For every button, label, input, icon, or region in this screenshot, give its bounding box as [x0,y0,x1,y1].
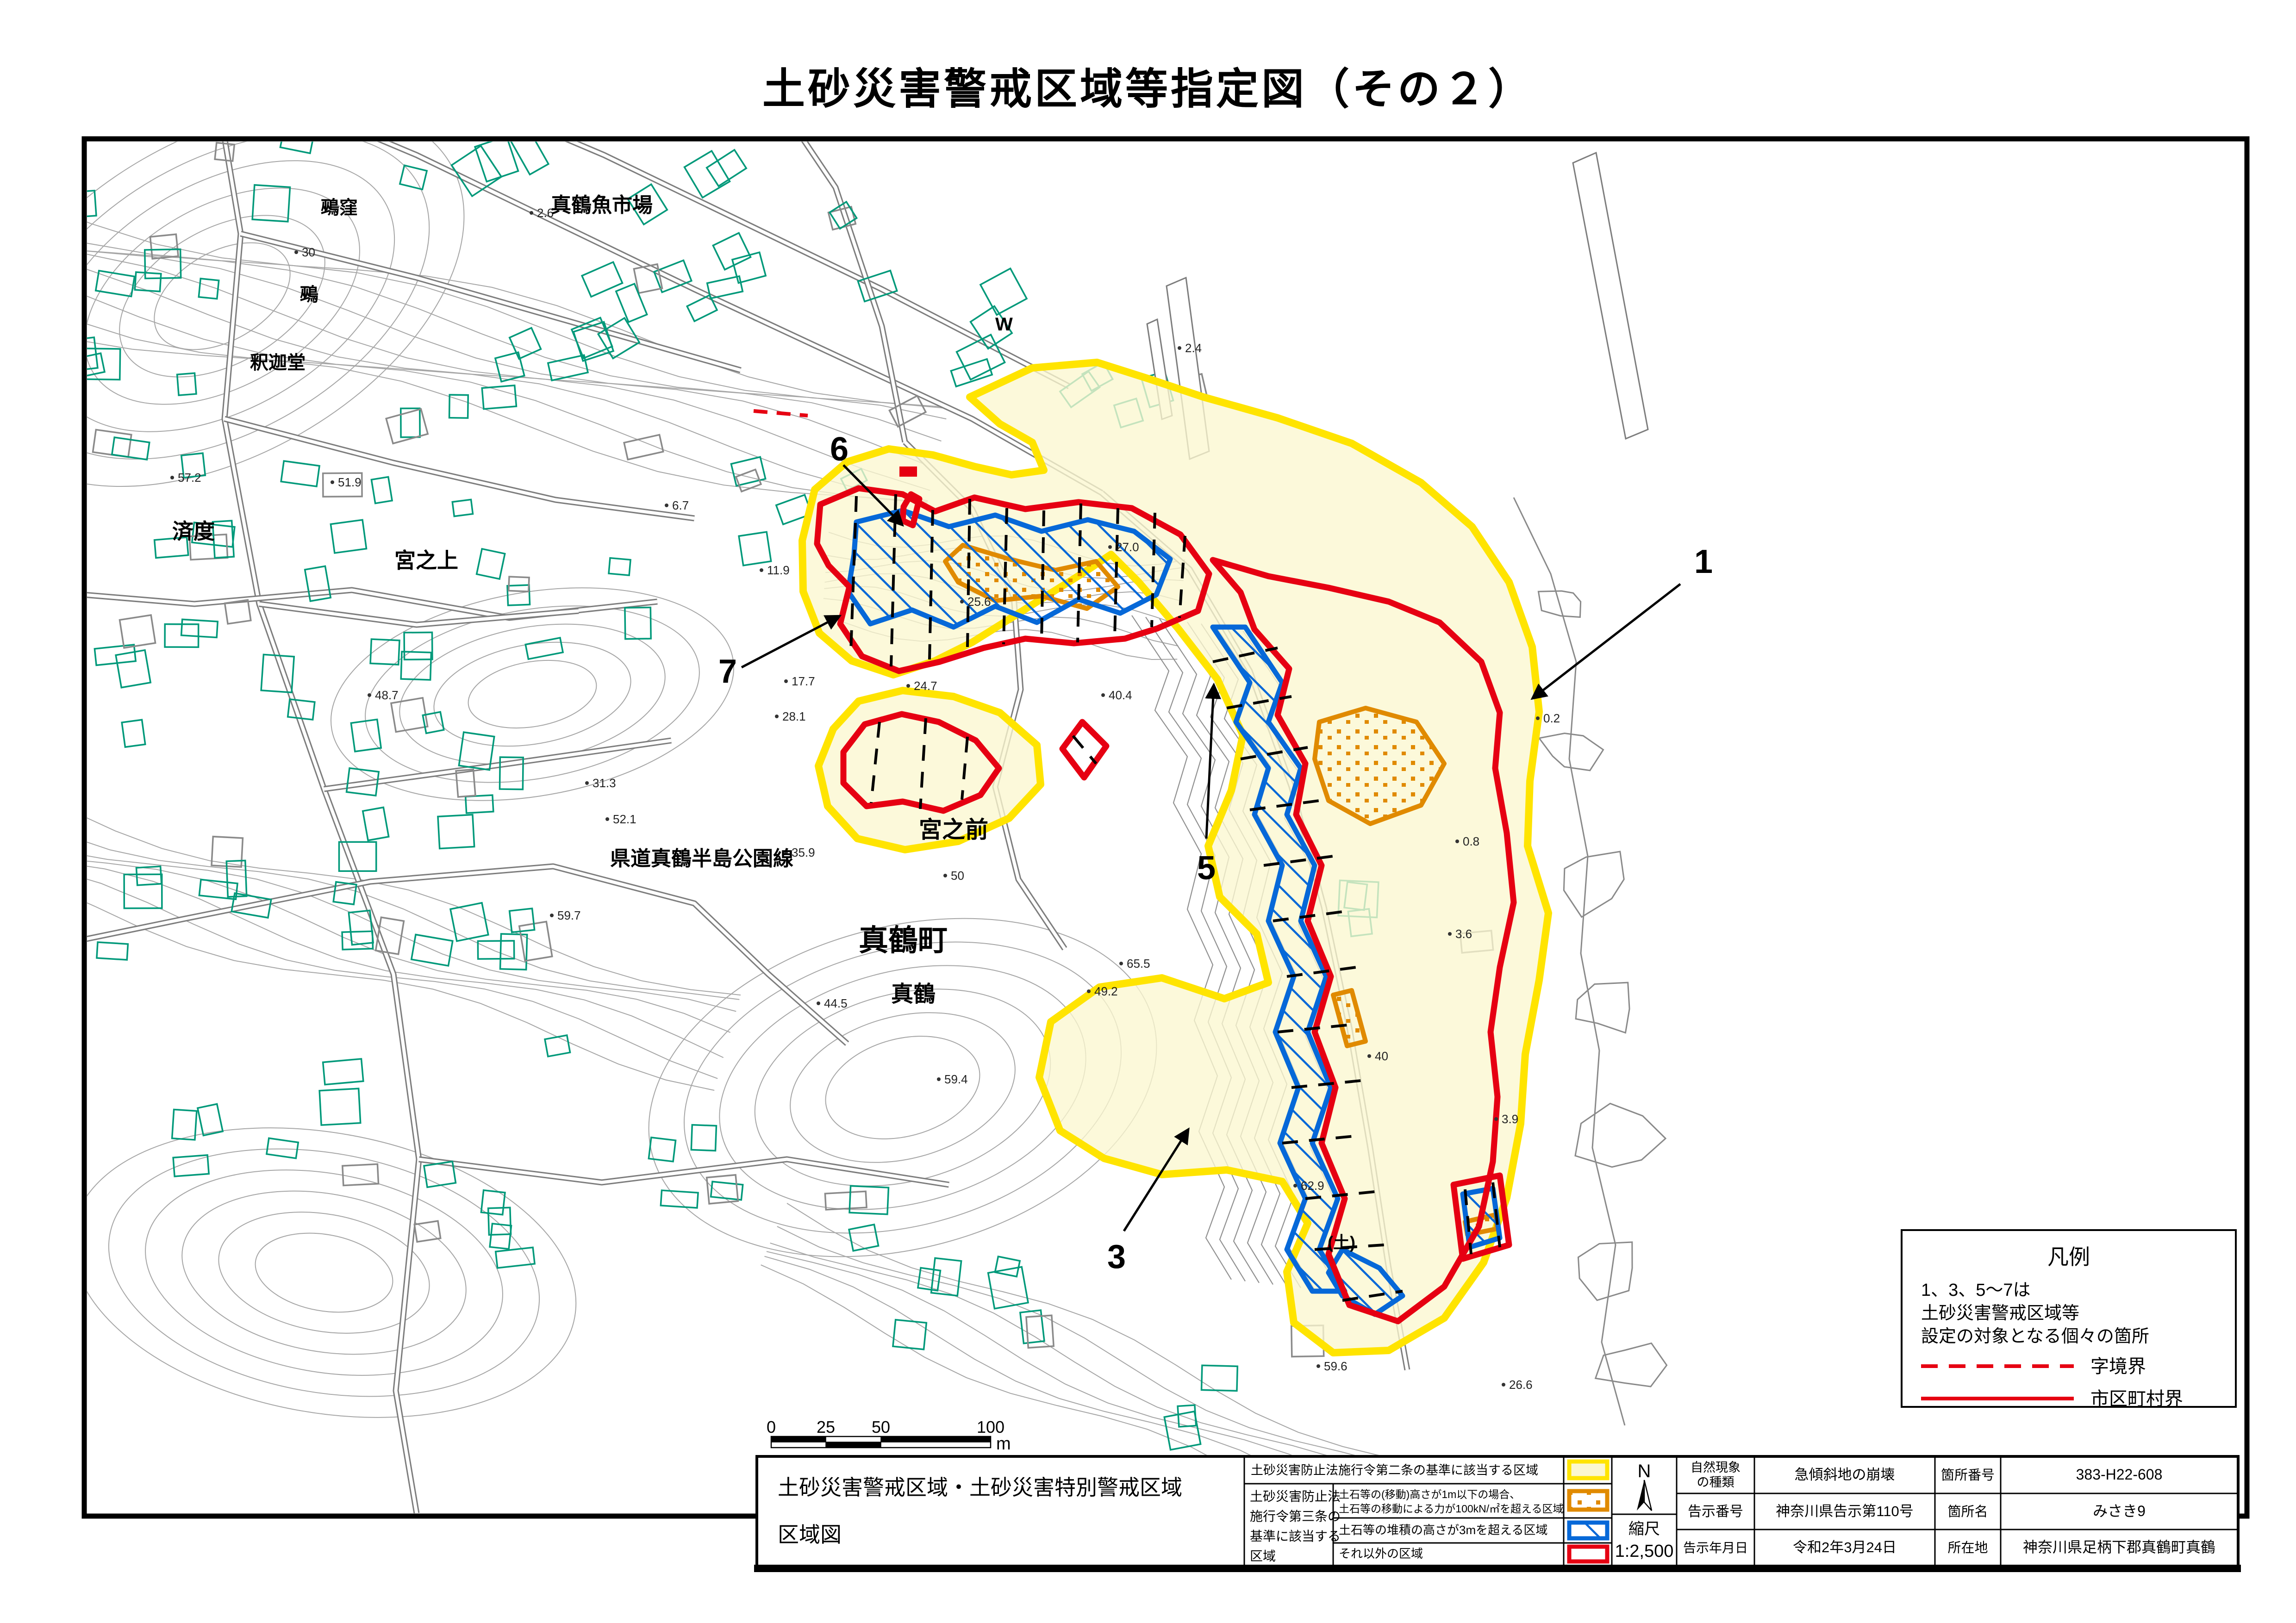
swatch-red-other-area [1569,1547,1607,1561]
callout-number-6: 6 [830,431,849,468]
spot-elevation: 3.6 [1455,927,1472,941]
table-article3-row1-line2: 土石等の移動による力が100kN/㎡を超える区域 [1339,1503,1564,1515]
info-label-notice-date: 告示年月日 [1683,1541,1748,1555]
spot-elevation: 44.5 [824,996,848,1010]
aza-boundary-red-dashed [754,411,808,416]
scale-tick-25: 25 [817,1418,835,1436]
legend-note-line1: 1、3、5～7は [1921,1281,2031,1300]
map-label: 宮之前 [919,817,988,843]
info-value-notice-date: 令和2年3月24日 [1793,1539,1897,1555]
map-label: (土) [1328,1233,1355,1252]
spot-elevation: 52.1 [613,812,636,826]
compass-n-label: N [1638,1461,1651,1481]
spot-elevation: 11.9 [767,563,790,577]
scale-tick-0: 0 [767,1418,776,1436]
small-red-marker [899,466,917,477]
table-article3-row2: 土石等の堆積の高さが3mを超える区域 [1339,1523,1547,1537]
spot-elevation: 49.2 [1094,984,1118,998]
spot-elevation: 35.9 [792,846,815,859]
callout-number-7: 7 [718,653,737,690]
spot-elevation: 51.9 [338,475,362,489]
scale-tick-100: 100 [977,1418,1004,1436]
callout-number-5: 5 [1197,850,1216,887]
spot-elevation: 65.5 [1127,957,1150,970]
swatch-blue-deposit-area [1569,1523,1607,1538]
map-label: 真鶴 [891,982,936,1007]
spot-elevation: 40.4 [1109,688,1132,702]
info-value-phenomenon: 急傾斜地の崩壊 [1795,1467,1895,1483]
info-table: 土砂災害警戒区域・土砂災害特別警戒区域 区域図 土砂災害防止法施行令第二条の基準… [754,1456,2241,1572]
map-label: W [995,314,1013,335]
spot-elevation: 30 [302,245,315,259]
map-label: 真鶴魚市場 [551,194,653,217]
swatch-orange-movement-area [1569,1491,1607,1510]
swatch-yellow-warning-area [1569,1461,1607,1478]
spot-elevation: 17.7 [792,674,815,688]
spot-elevation: 26.6 [1509,1378,1533,1392]
table-article3-row3: それ以外の区域 [1339,1547,1423,1561]
table-map-title-line1: 土砂災害警戒区域・土砂災害特別警戒区域 [778,1475,1182,1499]
hazard-map: 2.6302.46.757.251.948.731.311.917.724.72… [0,0,2296,1623]
table-article3-header-line1: 土砂災害防止法 [1250,1489,1341,1504]
page: 土砂災害警戒区域等指定図（その２） [0,0,2296,1623]
spot-elevation: 48.7 [375,688,399,702]
map-label: 真鶴町 [859,924,948,957]
info-value-location: 神奈川県足柄下郡真鶴町真鶴 [2023,1539,2215,1555]
info-label-phenomenon-l1: 自然現象 [1691,1461,1741,1474]
callout-number-3: 3 [1107,1238,1126,1275]
legend-title: 凡例 [2047,1245,2090,1269]
scale-bar: 0 25 50 100 m [767,1418,1011,1454]
spot-elevation: 2.4 [1185,341,1202,355]
legend-note-line2: 土砂災害警戒区域等 [1921,1304,2079,1323]
spot-elevation: 59.7 [557,908,581,922]
spot-elevation: 6.7 [672,498,689,512]
info-value-notice-number: 神奈川県告示第110号 [1776,1503,1913,1519]
table-article3-row1-line1: 土石等の(移動)高さが1m以下の場合、 [1339,1488,1520,1500]
table-scale-value: 1:2,500 [1615,1542,1674,1561]
table-article2-text: 土砂災害防止法施行令第二条の基準に該当する区域 [1251,1463,1538,1477]
scale-tick-50: 50 [872,1418,890,1436]
callout-arrow-1 [1533,584,1680,698]
map-label: 鵐窪 [321,198,358,218]
spot-elevation: 0.2 [1543,711,1560,725]
spot-elevation: 28.1 [782,709,806,723]
spot-elevation: 50 [951,869,964,883]
legend-note-line3: 設定の対象となる個々の箇所 [1921,1327,2149,1346]
table-article3-header-line2: 施行令第三条の [1250,1509,1341,1524]
spot-elevation: 24.7 [914,679,937,693]
spot-elevation: 59.6 [1324,1359,1348,1373]
info-label-site-number: 箇所番号 [1941,1468,1995,1483]
spot-elevation: 0.8 [1463,834,1479,848]
table-scale-label: 縮尺 [1628,1520,1660,1538]
info-value-site-name: みさき9 [2093,1503,2146,1519]
callout-arrow-5 [1206,686,1214,839]
spot-elevation: 62.9 [1301,1179,1324,1193]
info-label-phenomenon-l2: の種類 [1697,1475,1734,1489]
page-title: 土砂災害警戒区域等指定図（その２） [0,55,2296,116]
roads [28,37,1407,1513]
info-label-notice-number: 告示番号 [1688,1504,1743,1519]
spot-elevation: 57.2 [178,471,201,485]
info-value-site-number: 383-H22-608 [2076,1466,2163,1483]
scale-unit: m [996,1434,1011,1454]
spot-elevation: 27.0 [1116,540,1139,554]
contour-lines [0,27,1389,1541]
table-map-title-line2: 区域図 [778,1523,842,1547]
map-label: 済度 [172,519,215,543]
spot-elevation: 59.4 [944,1072,968,1086]
info-label-location: 所在地 [1947,1540,1988,1555]
info-label-site-name: 箇所名 [1947,1504,1988,1519]
callout-number-1: 1 [1694,543,1713,580]
spot-elevation: 40 [1375,1049,1388,1063]
map-label: 宮之上 [394,548,458,572]
map-label: 釈迦堂 [250,353,306,373]
spot-elevation: 31.3 [593,776,616,790]
map-label: 鵐 [300,285,318,305]
legend-item-aza-boundary: 字境界 [2090,1356,2146,1377]
legend-box: 凡例 1、3、5～7は 土砂災害警戒区域等 設定の対象となる個々の箇所 字境界 … [1902,1230,2236,1409]
spot-elevation: 25.6 [967,595,991,609]
table-article3-header-line3: 基準に該当する [1250,1529,1341,1543]
map-label: 県道真鶴半島公園線 [610,847,793,870]
spot-elevation: 3.9 [1502,1112,1518,1126]
table-article3-header-line4: 区域 [1250,1549,1276,1563]
legend-item-municipal-boundary: 市区町村界 [2090,1389,2183,1409]
